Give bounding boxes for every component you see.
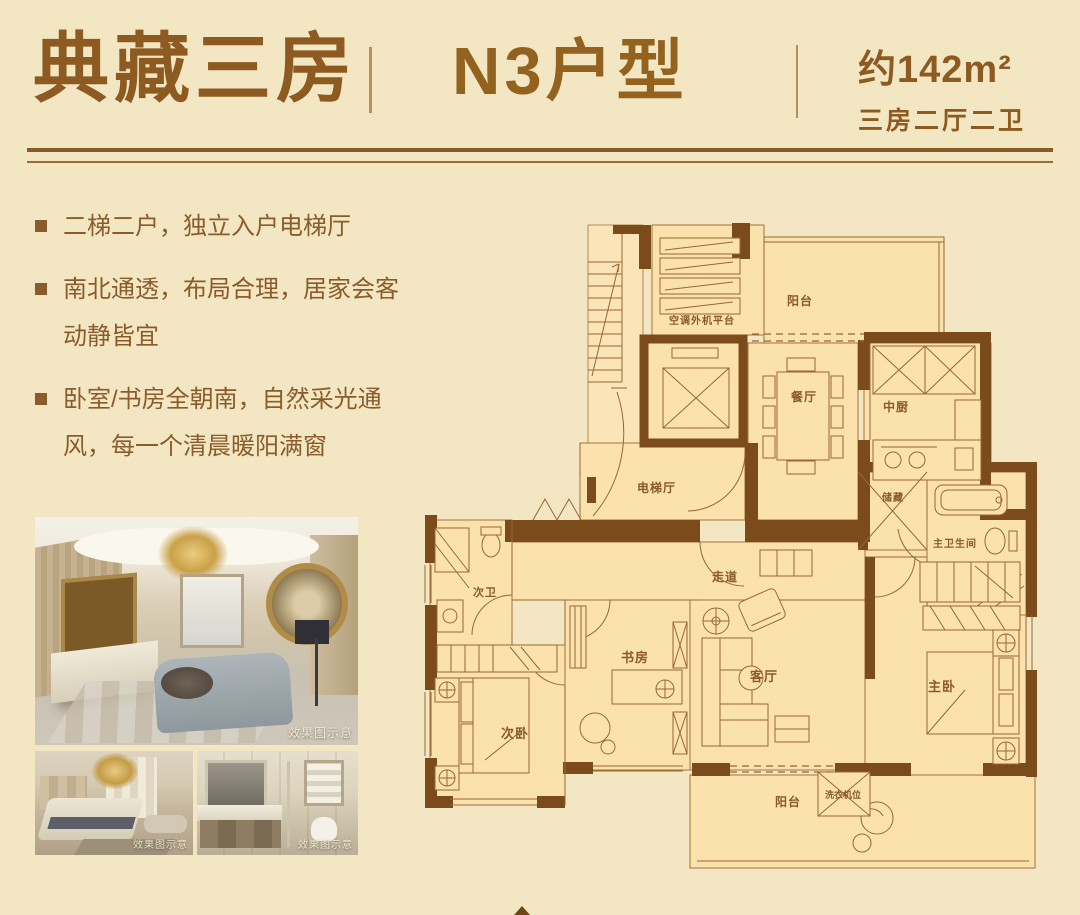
feature-text: 卧室/书房全朝南，自然采光通风，每一个清晨暖阳满窗 — [63, 386, 382, 460]
header-divider-1 — [369, 47, 372, 113]
feature-text: 二梯二户，独立入户电梯厅 — [63, 213, 351, 240]
shower-glass — [287, 761, 290, 846]
room-label-elevator-hall: 电梯厅 — [637, 480, 676, 495]
photo-window — [180, 574, 244, 648]
floor-lamp — [295, 620, 329, 644]
room-label-living: 客厅 — [750, 669, 778, 684]
room-label-corridor: 走道 — [712, 569, 738, 584]
unit-spec: 三房二厅二卫 — [858, 101, 1026, 137]
unit-meta: 约142m² 三房二厅二卫 — [858, 38, 1026, 137]
room-label-kitchen: 中厨 — [883, 399, 909, 414]
bathroom-photo: 效果图示意 — [197, 751, 358, 855]
photo-watermark: 效果图示意 — [133, 836, 188, 851]
header-rule — [27, 148, 1053, 163]
vanity-counter — [197, 805, 282, 821]
feature-list: 二梯二户，独立入户电梯厅 南北通透，布局合理，居家会客动静皆宜 卧室/书房全朝南… — [35, 203, 400, 486]
photo-window — [304, 760, 344, 806]
room-label-master-bath: 主卫生间 — [933, 537, 977, 550]
living-room-photo: 效果图示意 — [35, 517, 358, 745]
room-label-second-bath: 次卫 — [473, 585, 497, 599]
flyer-page: 典藏三房 N3户型 约142m² 三房二厅二卫 二梯二户，独立入户电梯厅 南北通… — [0, 0, 1080, 915]
bottom-compass-mark — [514, 906, 530, 915]
photo-watermark: 效果图示意 — [298, 836, 353, 851]
bullet-square-icon — [35, 283, 47, 295]
coffee-table — [161, 667, 213, 699]
bullet-square-icon — [35, 220, 47, 232]
unit-name: N3户型 — [452, 33, 688, 110]
floor-lamp-stem — [315, 638, 318, 706]
bullet-square-icon — [35, 393, 47, 405]
room-label-study: 书房 — [621, 650, 649, 665]
room-label-master-bedroom: 主卧 — [928, 679, 956, 694]
vanity-cabinet — [200, 820, 281, 848]
room-label-washer: 洗衣机位 — [825, 789, 861, 800]
bed-runner — [47, 817, 136, 829]
feature-text: 南北通透，布局合理，居家会客动静皆宜 — [63, 276, 399, 350]
master-bedroom-furniture — [920, 562, 1020, 764]
floor-plan: 阳台 空调外机平台 餐厅 中厨 储藏 主卫生间 电梯厅 次卫 走道 书房 客厅 … — [415, 200, 1075, 890]
room-label-storage: 储藏 — [881, 491, 904, 504]
elevator-shaft-area — [640, 335, 746, 443]
feature-item: 二梯二户，独立入户电梯厅 — [35, 203, 400, 250]
bench — [144, 815, 187, 833]
balcony-north-area — [764, 237, 944, 343]
feature-item: 南北通透，布局合理，居家会客动静皆宜 — [35, 266, 400, 360]
unit-area: 约142m² — [858, 38, 1026, 93]
page-title: 典藏三房 — [33, 28, 357, 112]
room-label-second-bedroom: 次卧 — [501, 726, 529, 741]
bedroom-photo: 效果图示意 — [35, 751, 193, 855]
header-divider-2 — [796, 45, 798, 118]
hall-cabinet — [760, 550, 812, 576]
chandelier — [92, 753, 138, 789]
room-label-ac-platform: 空调外机平台 — [669, 314, 735, 327]
room-label-balcony-south: 阳台 — [775, 794, 801, 809]
room-label-dining: 餐厅 — [791, 389, 817, 404]
room-label-balcony-north: 阳台 — [787, 293, 813, 308]
photo-watermark: 效果图示意 — [288, 724, 353, 741]
feature-item: 卧室/书房全朝南，自然采光通风，每一个清晨暖阳满窗 — [35, 376, 400, 470]
